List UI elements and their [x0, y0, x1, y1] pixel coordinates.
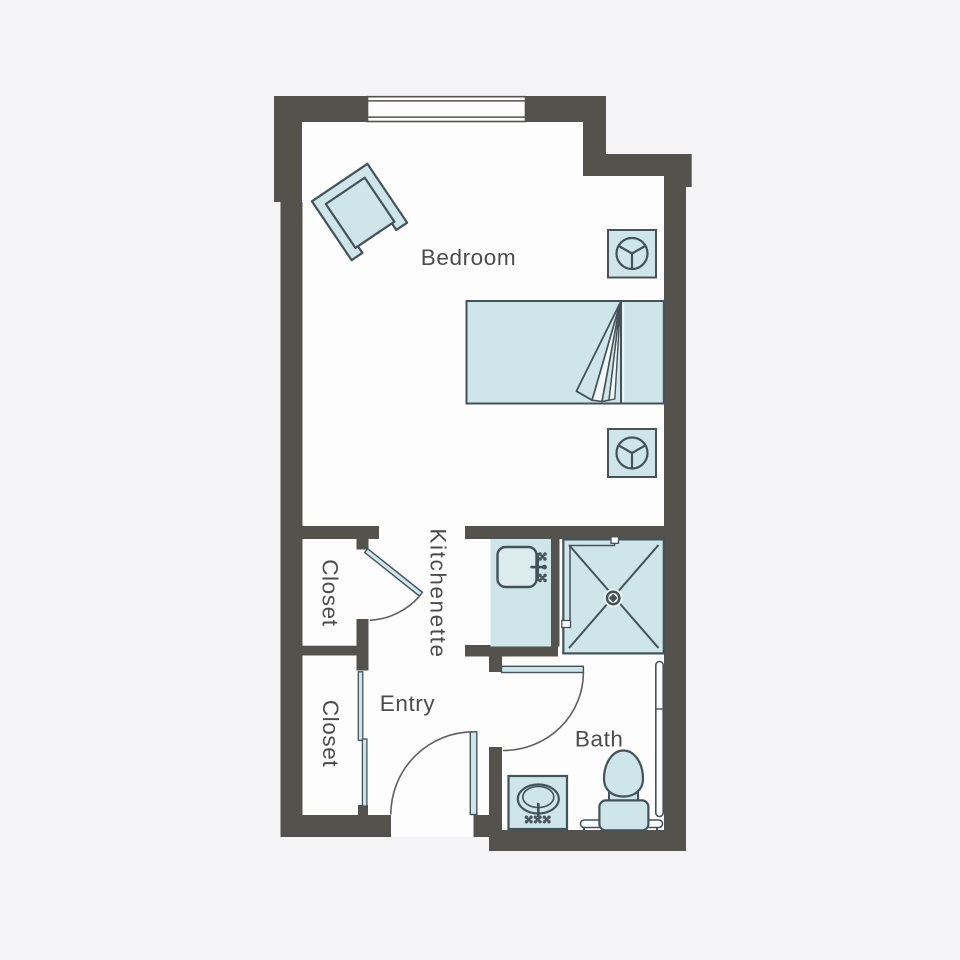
svg-text:Bath: Bath — [575, 726, 624, 751]
svg-text:Closet: Closet — [318, 559, 343, 627]
svg-text:Kitchenette: Kitchenette — [426, 528, 451, 658]
svg-text:Bedroom: Bedroom — [421, 245, 517, 270]
svg-text:Entry: Entry — [380, 691, 436, 716]
svg-text:Closet: Closet — [318, 700, 343, 768]
